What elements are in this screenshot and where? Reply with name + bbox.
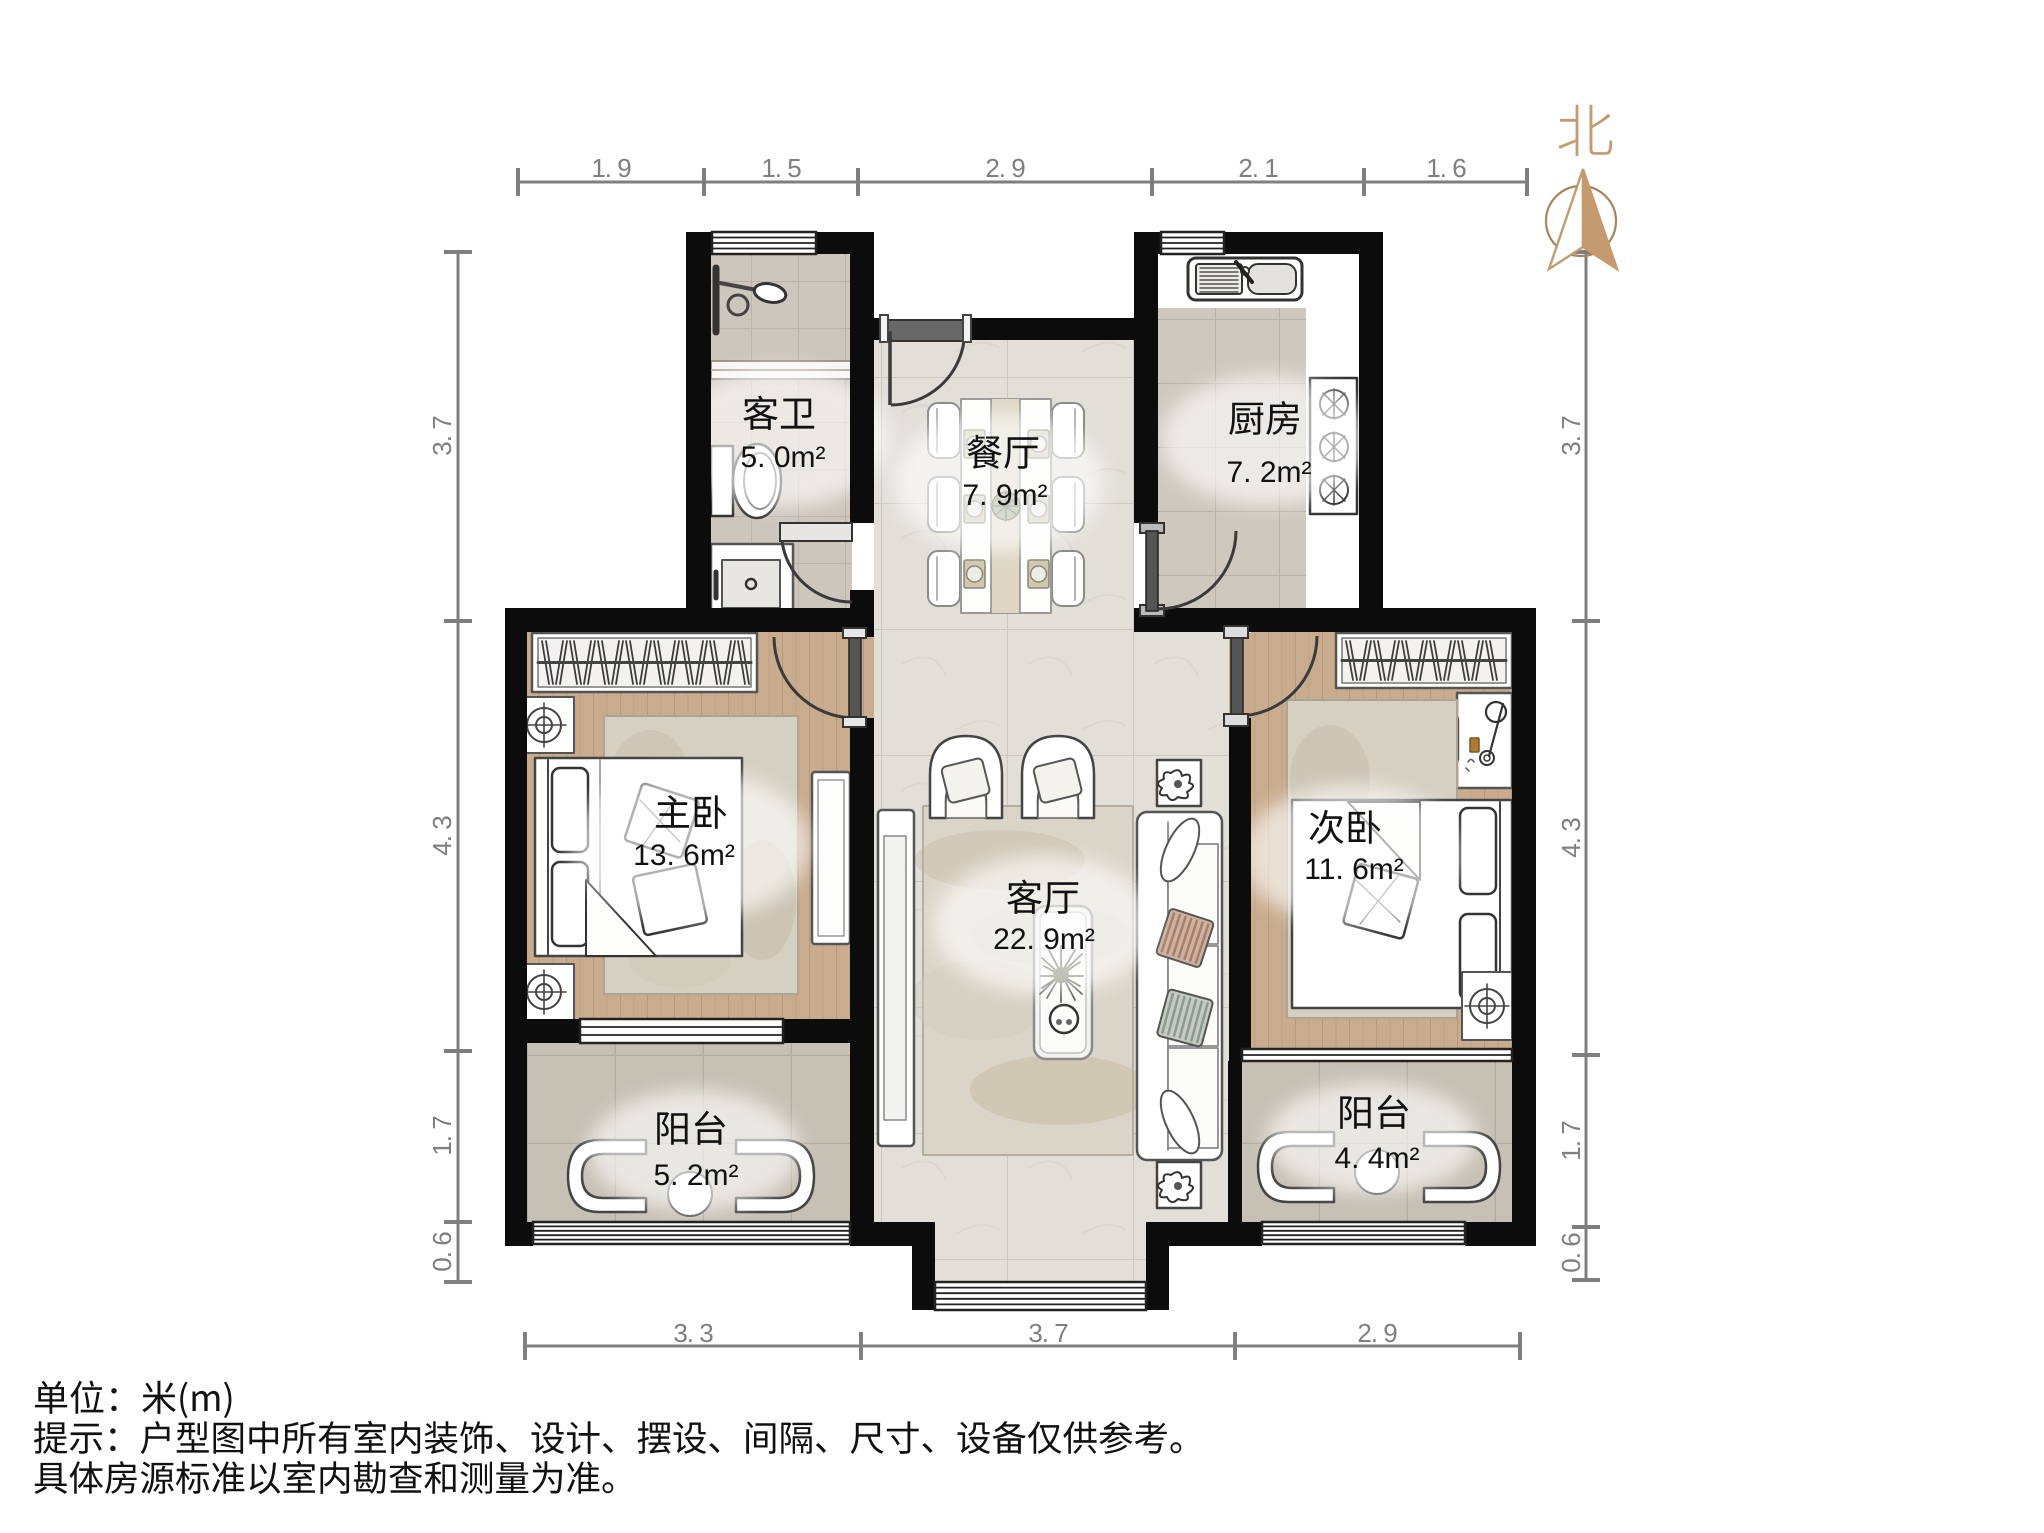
svg-text:4. 3: 4. 3: [427, 816, 457, 856]
svg-text:1. 7: 1. 7: [1556, 1121, 1586, 1161]
svg-text:4. 4m²: 4. 4m²: [1334, 1142, 1419, 1175]
svg-text:4. 3: 4. 3: [1556, 818, 1586, 858]
svg-text:13. 6m²: 13. 6m²: [633, 839, 735, 872]
svg-text:1. 7: 1. 7: [427, 1116, 457, 1156]
svg-text:2. 1: 2. 1: [1238, 153, 1278, 183]
svg-text:0. 6: 0. 6: [427, 1232, 457, 1272]
svg-text:2. 9: 2. 9: [985, 153, 1025, 183]
svg-text:5. 2m²: 5. 2m²: [653, 1159, 738, 1192]
svg-text:7. 9m²: 7. 9m²: [962, 479, 1047, 512]
svg-text:3. 3: 3. 3: [673, 1318, 713, 1348]
svg-text:2. 9: 2. 9: [1357, 1318, 1397, 1348]
svg-text:3. 7: 3. 7: [427, 416, 457, 456]
svg-text:0. 6: 0. 6: [1556, 1233, 1586, 1273]
svg-text:22. 9m²: 22. 9m²: [993, 923, 1095, 956]
svg-text:1. 6: 1. 6: [1426, 153, 1466, 183]
svg-text:3. 7: 3. 7: [1556, 416, 1586, 456]
svg-text:3. 7: 3. 7: [1028, 1318, 1068, 1348]
svg-text:5. 0m²: 5. 0m²: [740, 441, 825, 474]
svg-text:11. 6m²: 11. 6m²: [1304, 853, 1403, 886]
svg-text:1. 9: 1. 9: [591, 153, 631, 183]
svg-text:1. 5: 1. 5: [761, 153, 801, 183]
svg-text:7. 2m²: 7. 2m²: [1226, 456, 1311, 489]
